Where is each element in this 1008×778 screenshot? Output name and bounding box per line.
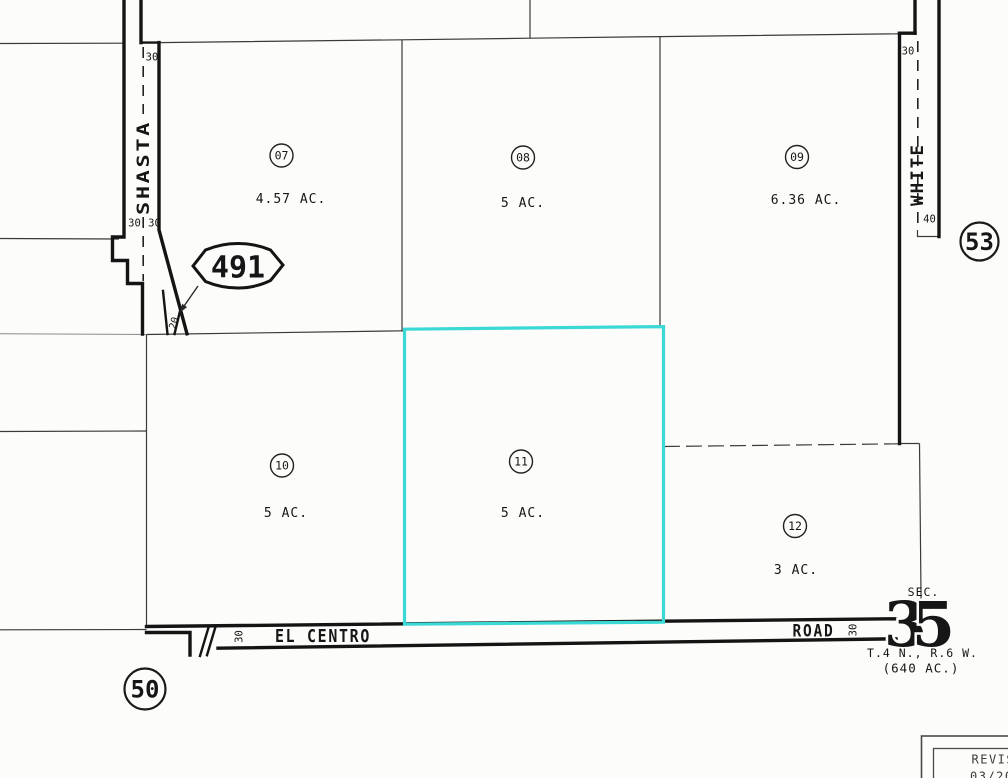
dim-el-centro-east: 30 xyxy=(848,624,860,637)
dim-shasta-top: 30 xyxy=(146,52,159,64)
west-line-stub-2 xyxy=(0,334,147,335)
parcel-12-number: 12 xyxy=(788,519,802,533)
parcel-12-acreage: 3 AC. xyxy=(774,563,818,578)
parcel-12-region[interactable] xyxy=(664,446,900,620)
parcel-10-acreage: 5 AC. xyxy=(264,506,308,521)
sheet-53-number: 53 xyxy=(965,228,994,256)
el-centro-street-label: EL CENTRO xyxy=(275,627,371,647)
parcel-09-acreage: 6.36 AC. xyxy=(771,193,842,208)
west-line-stub-3 xyxy=(0,431,147,432)
dim-shasta-west: 30 xyxy=(128,218,141,230)
sheet-50-number: 50 xyxy=(131,676,160,704)
parcel-09-number: 09 xyxy=(790,150,804,164)
parcel-10-number: 10 xyxy=(275,459,289,473)
section-area-label: (640 AC.) xyxy=(883,661,960,676)
sheet-50-reference[interactable]: 50 xyxy=(125,669,166,710)
parcel-07-number: 07 xyxy=(275,149,289,163)
revision-date: 03/20/ xyxy=(970,770,1008,778)
dim-white-south: 40 xyxy=(923,214,936,226)
dim-shasta-east: 30 xyxy=(148,218,161,230)
revision-label: REVIS xyxy=(972,753,1008,767)
parcel-10-region[interactable] xyxy=(147,334,404,626)
parcel-11-region[interactable] xyxy=(404,329,664,623)
parcel-07-acreage: 4.57 AC. xyxy=(256,192,327,207)
parcel-09-region[interactable] xyxy=(660,36,899,445)
parcel-08-number: 08 xyxy=(516,151,530,165)
road-suffix-label: ROAD xyxy=(793,622,835,641)
assessor-parcel-map: 07 4.57 AC. 08 5 AC. 09 6.36 AC. 10 5 AC… xyxy=(0,0,1008,778)
township-range-label: T.4 N., R.6 W. xyxy=(867,646,978,660)
sheet-53-reference[interactable]: 53 xyxy=(961,223,999,261)
route-491-number: 491 xyxy=(211,251,265,286)
parcel-11-number: 11 xyxy=(514,455,528,469)
parcel-08-region[interactable] xyxy=(402,38,660,329)
dim-white-top: 30 xyxy=(902,46,915,58)
parcel-map-canvas: 07 4.57 AC. 08 5 AC. 09 6.36 AC. 10 5 AC… xyxy=(0,0,1008,778)
parcel-11-acreage: 5 AC. xyxy=(501,506,545,521)
dim-el-centro-west: 30 xyxy=(234,630,246,643)
white-street-label: WHITE xyxy=(908,143,928,206)
parcel-08-acreage: 5 AC. xyxy=(501,196,545,211)
west-line-stub-1 xyxy=(0,239,119,240)
shasta-street-label: SHASTA xyxy=(134,120,154,215)
